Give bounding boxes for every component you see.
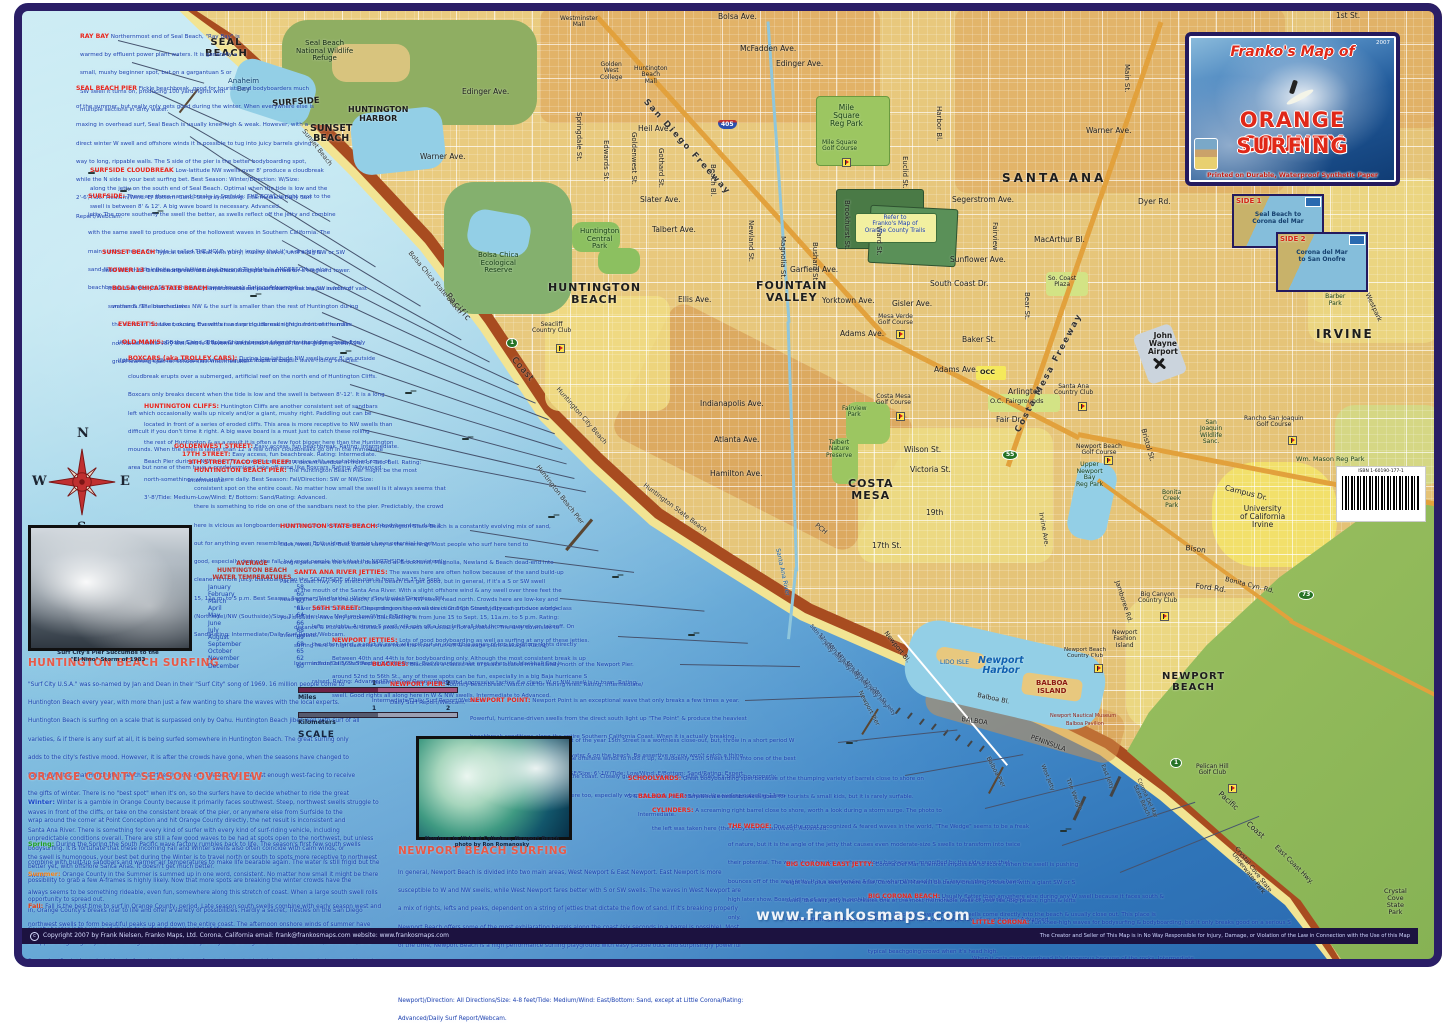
temp-value: 62 — [296, 655, 304, 662]
temp-month: November — [208, 655, 239, 662]
kilometers-bar — [298, 712, 458, 718]
temp-month: August — [208, 634, 229, 641]
miles-label: Miles — [298, 694, 458, 701]
temp-month: May — [208, 612, 220, 619]
franko-portrait — [1194, 138, 1218, 170]
temp-row: May64 — [190, 612, 314, 619]
cylinders-wave-photo — [416, 736, 572, 840]
kilometers-label: Kilometers — [298, 719, 458, 726]
miles-bar — [298, 687, 458, 693]
temp-row: January58 — [190, 584, 314, 591]
section-heading: BOLSA CHICA STATE BEACH — [112, 285, 207, 292]
scale-tick: 2 — [446, 705, 450, 712]
compass-north: N — [77, 426, 89, 441]
temp-row: February60 — [190, 591, 314, 598]
title-kicker: Franko's Map of — [1189, 44, 1396, 60]
temp-value: 60 — [296, 663, 304, 670]
section-heading: NEWPORT JETTIES: — [332, 637, 397, 644]
section-heading: HUNTINGTON CLIFFS: — [144, 403, 219, 410]
temp-value: 64 — [296, 612, 304, 619]
section-heading: LITTLE CORONA: — [972, 919, 1030, 926]
water-temp-title: AVERAGE HUNTINGTON BEACH WATER TEMPERATU… — [190, 560, 314, 582]
scale-tick: 1 — [372, 680, 376, 687]
section-heading: Fall: — [28, 902, 43, 910]
section-heading: Spring: — [28, 840, 54, 848]
water-temp-table: AVERAGE HUNTINGTON BEACH WATER TEMPERATU… — [190, 560, 314, 670]
section-heading: THE WEDGE: — [728, 823, 772, 830]
temp-row: December60 — [190, 663, 314, 670]
wave-photo-caption: Nowhere to Hide at Cylinders, Newport Be… — [392, 836, 592, 848]
section-heading: BLACKIES: — [372, 661, 408, 668]
disclaimer-text: The Creator and Seller of This Map is in… — [1040, 933, 1410, 939]
temp-row: August69 — [190, 634, 314, 641]
section-heading: OLD MAN'S: — [122, 339, 163, 346]
title-line2: SURFING — [1189, 134, 1396, 158]
temp-row: April61 — [190, 605, 314, 612]
section-heading: SURFSIDE CLOUDBREAK — [90, 167, 174, 174]
footer-bar: cCopyright 2007 by Frank Nielsen, Franko… — [22, 928, 1418, 944]
section-heading: RAY BAY — [80, 33, 109, 40]
surf-spot-section: ORANGE COUNTY SEASON OVERVIEW — [28, 772, 373, 786]
temp-value: 60 — [296, 598, 304, 605]
section-heading: NEWPORT POINT: — [470, 697, 531, 704]
section-heading: TOWER 13 — [108, 267, 144, 274]
website-watermark: www.frankosmaps.com — [756, 906, 971, 924]
copyright-icon: c — [30, 932, 39, 941]
temp-value: 58 — [296, 584, 304, 591]
temp-row: June66 — [190, 620, 314, 627]
temp-row: March60 — [190, 598, 314, 605]
temp-month: December — [208, 663, 239, 670]
section-heading: SCHOOLYARDS: — [628, 775, 681, 782]
scale-tick: 2 — [446, 680, 450, 687]
compass-west: W — [32, 474, 47, 489]
temp-row: October65 — [190, 648, 314, 655]
section-heading: BIG CORONA BEACH: — [868, 893, 940, 900]
side1-text: Seal Beach to Corona del Mar — [1234, 212, 1322, 226]
pier-photo-caption: Surf City's Pier Succumbs to the "El Niñ… — [18, 650, 198, 663]
compass-star — [47, 447, 117, 517]
section-heading: Summer: — [28, 870, 61, 878]
section-heading: Winter: — [28, 798, 55, 806]
temp-month: April — [208, 605, 222, 612]
temp-value: 68 — [296, 627, 304, 634]
temp-month: March — [208, 598, 226, 605]
map-scale: 12 Miles 12 Kilometers SCALE — [298, 680, 458, 740]
inset-tab — [1305, 197, 1321, 207]
temp-month: January — [208, 584, 231, 591]
scale-tick: 1 — [372, 705, 376, 712]
section-heading: SURFSIDE: — [88, 193, 125, 200]
side2-inset: SIDE 2 Corona del Mar to San Onofre — [1276, 232, 1368, 292]
section-heading: EVERETT'S: — [118, 321, 158, 328]
section-heading: CYLINDERS: — [652, 807, 694, 814]
barcode-bars — [1342, 476, 1420, 510]
temp-month: October — [208, 648, 232, 655]
compass-east: E — [120, 474, 130, 489]
barcode: ISBN 1-60190-177-1 — [1336, 466, 1426, 522]
section-heading: BIG CORONA EAST JETTY: — [786, 861, 874, 868]
section-heading: ORANGE COUNTY SEASON OVERVIEW — [28, 772, 373, 784]
temp-value: 66 — [296, 620, 304, 627]
temp-month: June — [208, 620, 221, 627]
compass-rose: N E S W — [30, 430, 134, 534]
isbn-text: ISBN 1-60190-177-1 — [1337, 469, 1425, 474]
inset-tab — [1349, 235, 1365, 245]
temp-value: 60 — [296, 591, 304, 598]
title-box: 2007 Franko's Map of ORANGE COUNTY SURFI… — [1185, 32, 1400, 186]
side2-text: Corona del Mar to San Onofre — [1278, 250, 1366, 264]
temp-row: September68 — [190, 641, 314, 648]
temp-row: July68 — [190, 627, 314, 634]
pier-storm-photo — [28, 525, 192, 651]
side1-tag: SIDE 1 — [1236, 197, 1262, 205]
title-tagline: Printed on Durable, Waterproof Synthetic… — [1189, 172, 1396, 179]
copyright-text: Copyright 2007 by Frank Nielsen, Franko … — [43, 932, 449, 939]
section-heading: 56TH STREET: — [312, 605, 360, 612]
section-body: In general, Newport Beach is divided int… — [398, 870, 743, 1022]
side2-tag: SIDE 2 — [1280, 235, 1306, 243]
section-heading: SEAL BEACH PIER — [76, 85, 137, 92]
section-heading: BOXCARS (aka TROLLEY CARS): — [128, 355, 237, 362]
temp-value: 65 — [296, 648, 304, 655]
temp-month: February — [208, 591, 235, 598]
section-heading: HUNTINGTON STATE BEACH: — [280, 523, 378, 530]
page: { "title_box":{"year":"2007","kicker":"F… — [0, 0, 1445, 963]
section-heading: SUNSET BEACH — [102, 249, 155, 256]
temp-value: 68 — [296, 641, 304, 648]
section-heading: HUNTINGTON BEACH PIER: — [194, 467, 287, 474]
temp-row: November62 — [190, 655, 314, 662]
temp-month: July — [208, 627, 219, 634]
water-temp-rows: January58February60March60April61May64Ju… — [190, 584, 314, 670]
temp-value: 69 — [296, 634, 304, 641]
temp-month: September — [208, 641, 241, 648]
temp-value: 61 — [296, 605, 304, 612]
